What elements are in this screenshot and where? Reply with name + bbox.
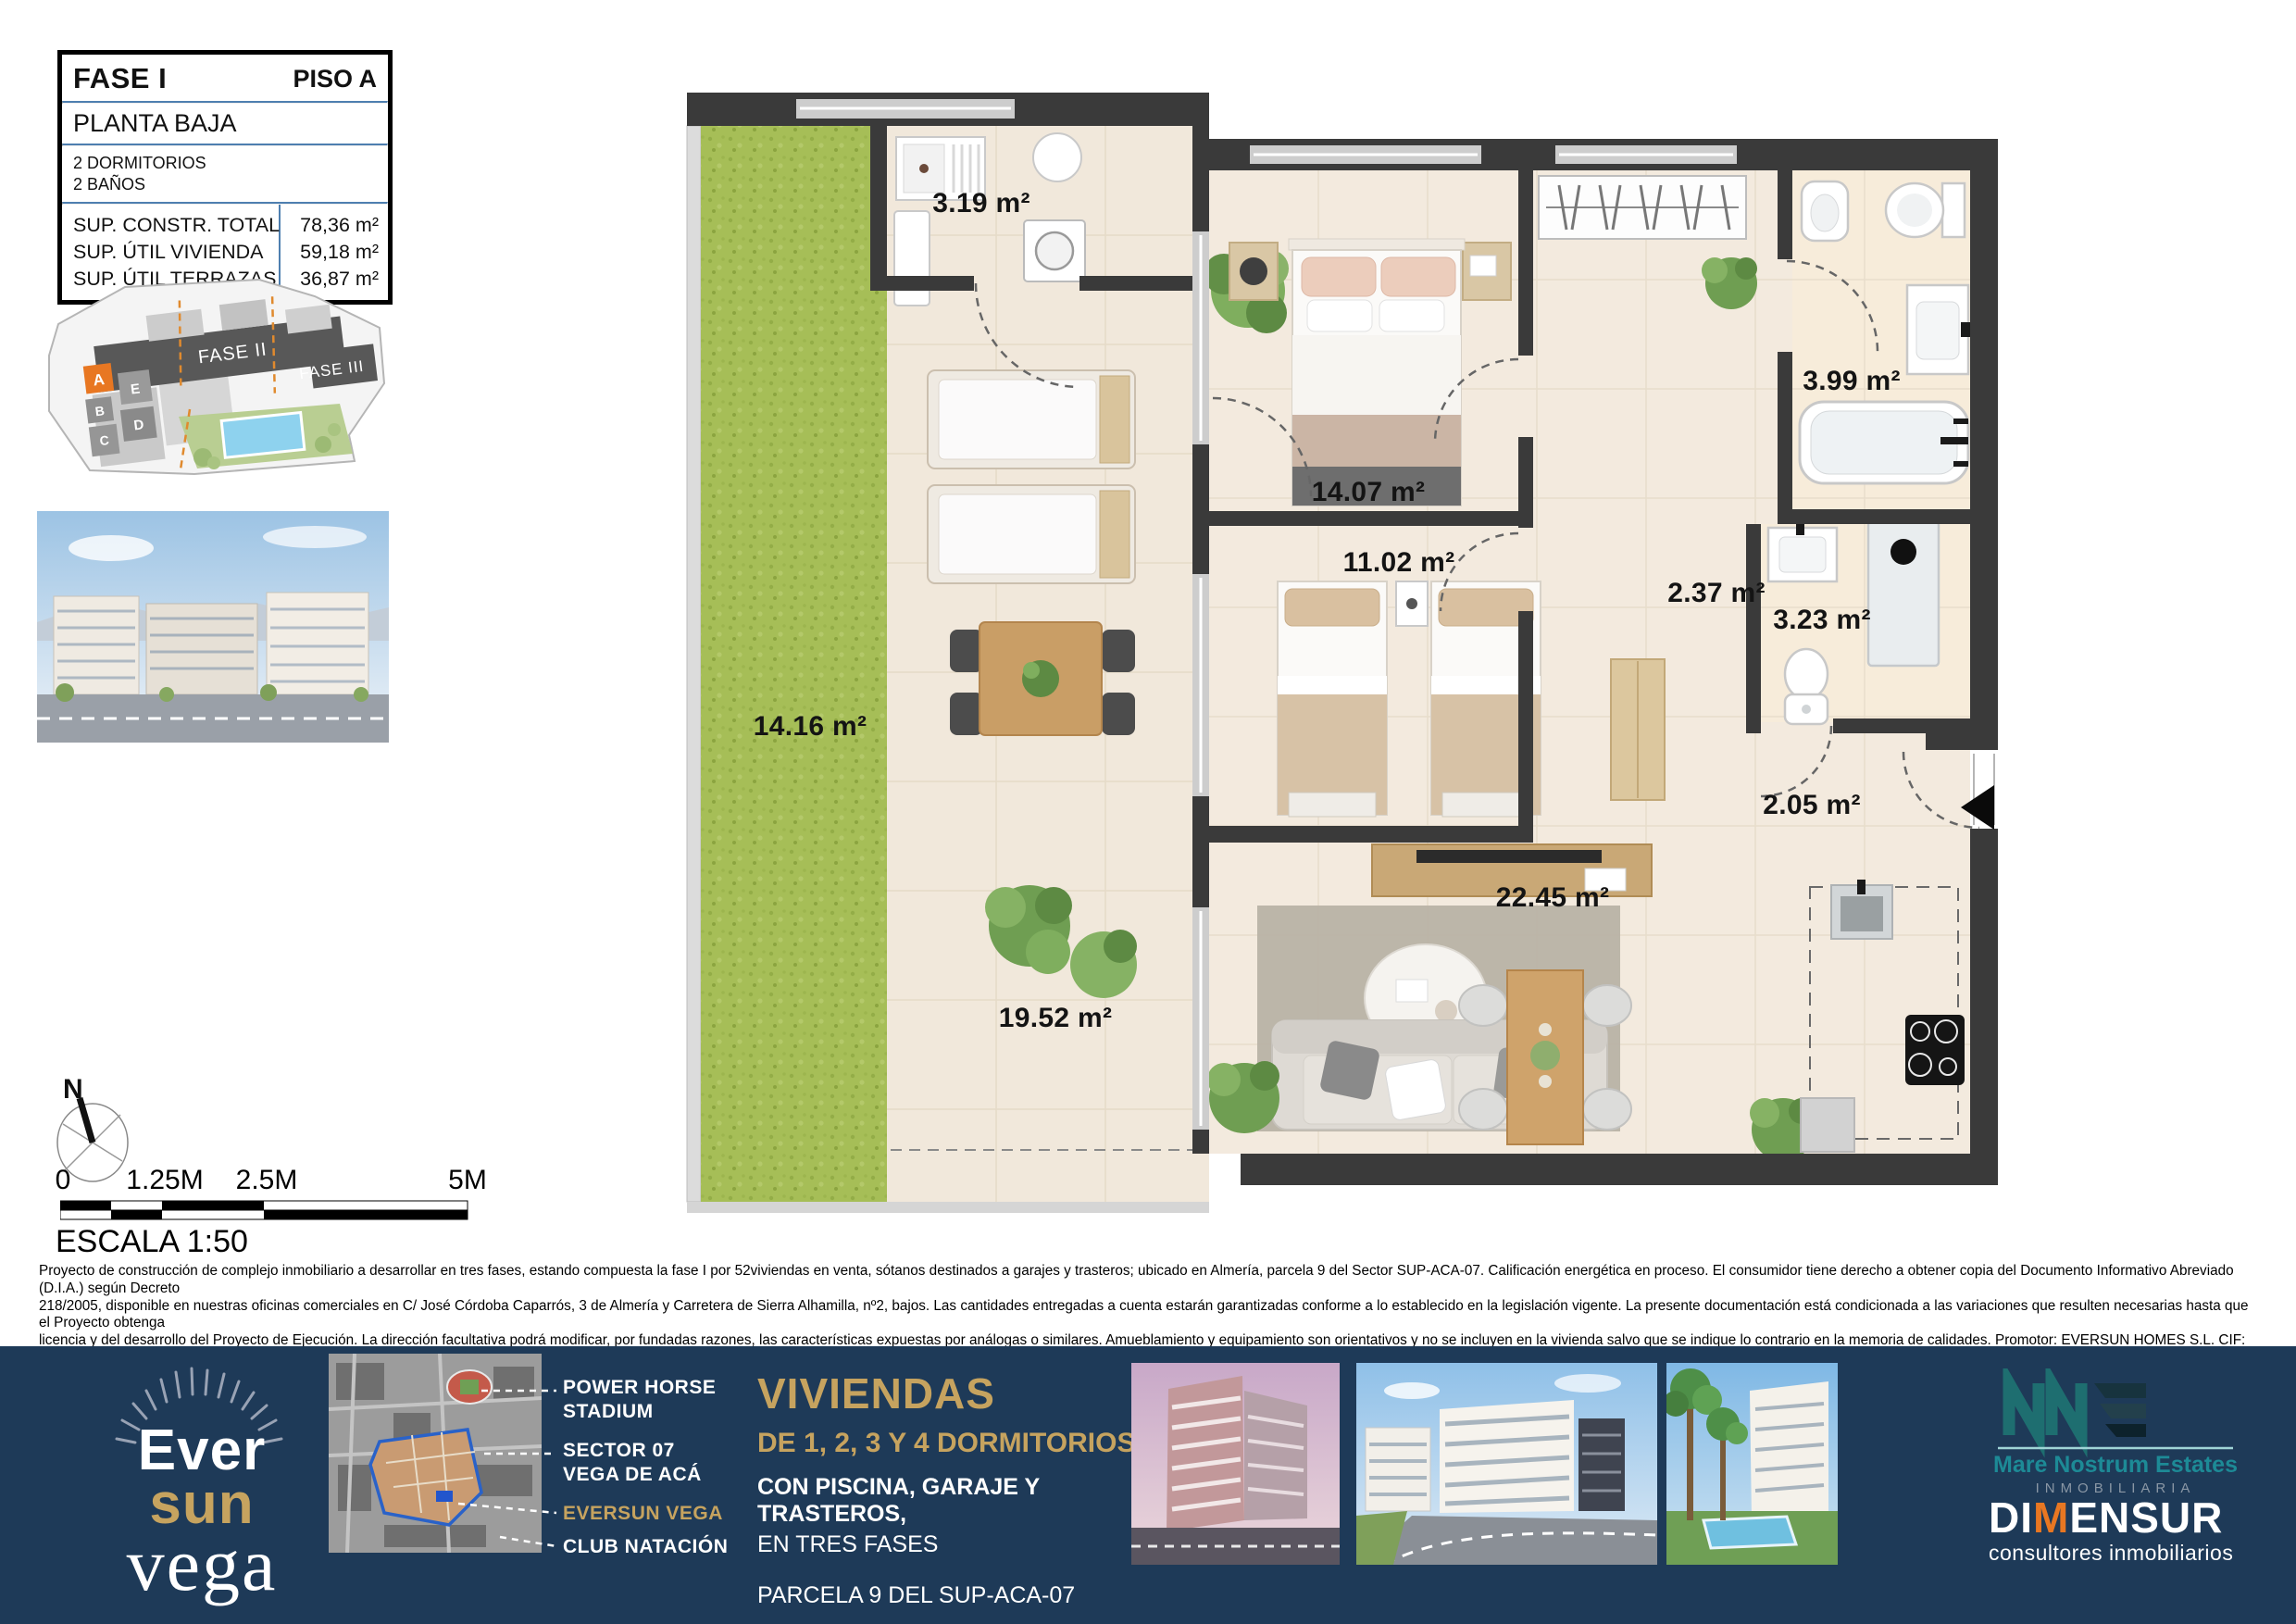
promo-title: VIVIENDAS xyxy=(757,1368,1146,1418)
pool xyxy=(221,413,305,458)
scale-tick-5: 5M xyxy=(448,1165,487,1196)
floorplan-brochure-page: FASE I PISO A PLANTA BAJA 2 DORMITORIOS … xyxy=(0,0,2296,1624)
bathroom-count: 2 BAÑOS xyxy=(73,174,377,195)
dimensur-sub: consultores inmobiliarios xyxy=(1989,1541,2248,1566)
planta-label: PLANTA BAJA xyxy=(62,104,388,144)
bedroom-count: 2 DORMITORIOS xyxy=(73,153,377,174)
floor-label: PISO A xyxy=(293,65,377,94)
scale-tick-25: 2.5M xyxy=(236,1165,298,1196)
block-d-label: D xyxy=(133,417,145,433)
room-label-laundry: 3.19 m² xyxy=(932,188,1030,219)
callout-club-natacion: CLUB NATACIÓN xyxy=(563,1535,728,1559)
block-e-label: E xyxy=(130,381,141,397)
promo-line3: CON PISCINA, GARAJE Y TRASTEROS, xyxy=(757,1474,1146,1528)
room-label-living: 22.45 m² xyxy=(1496,882,1609,914)
dimensur-logo: DIMENSUR consultores inmobiliarios xyxy=(1989,1494,2248,1566)
floor-plan xyxy=(685,93,2055,1218)
legal-line: Proyecto de construcción de complejo inm… xyxy=(39,1263,2259,1298)
terrace-glazing xyxy=(687,126,701,1202)
mare-nostrum-logo: Mare Nostrum Estates INMOBILIARIA xyxy=(1990,1368,2240,1498)
promo-line2: DE 1, 2, 3 Y 4 DORMITORIOS, xyxy=(757,1428,1146,1459)
block-b-label: B xyxy=(94,403,106,418)
room-label-bedroom-main: 14.07 m² xyxy=(1312,477,1425,508)
callout-stadium: POWER HORSE STADIUM xyxy=(563,1376,716,1424)
surface-row-value: 78,36 m² xyxy=(281,212,379,239)
room-label-bathroom-2: 3.23 m² xyxy=(1773,605,1871,636)
surface-row-value: 59,18 m² xyxy=(281,239,379,266)
room-label-hall-1: 2.37 m² xyxy=(1667,578,1766,609)
building-render-photo xyxy=(37,511,389,743)
promo-text: VIVIENDAS DE 1, 2, 3 Y 4 DORMITORIOS, CO… xyxy=(757,1368,1146,1624)
room-label-hall-entry: 2.05 m² xyxy=(1763,790,1861,821)
room-label-garden: 14.16 m² xyxy=(754,711,867,743)
scale-tick-125: 1.25M xyxy=(126,1165,203,1196)
mne-name: Mare Nostrum Estates xyxy=(1993,1452,2238,1478)
callout-eversun-vega: EVERSUN VEGA xyxy=(563,1502,723,1526)
scale-bar xyxy=(60,1200,471,1222)
footer-photo-3 xyxy=(1666,1363,1838,1565)
footer-photo-2 xyxy=(1356,1363,1657,1565)
wardrobe xyxy=(1539,176,1746,239)
room-label-terrace: 19.52 m² xyxy=(999,1003,1112,1034)
dimensur-orange-m: M xyxy=(2033,1493,2069,1542)
block-a-label: A xyxy=(92,370,106,389)
promo-line4: EN TRES FASES xyxy=(757,1531,1146,1558)
scale-tick-0: 0 xyxy=(56,1165,71,1196)
callout-sector: SECTOR 07 VEGA DE ACÁ xyxy=(563,1439,702,1487)
garden-grass xyxy=(701,126,887,1202)
room-label-bedroom-2: 11.02 m² xyxy=(1343,547,1455,579)
promo-line5: PARCELA 9 DEL SUP-ACA-07 xyxy=(757,1582,1146,1609)
phase-label: FASE I xyxy=(73,62,167,95)
eversun-logo-vega: vega xyxy=(100,1528,304,1602)
rooms-summary: 2 DORMITORIOS 2 BAÑOS xyxy=(62,146,388,202)
block-c-label: C xyxy=(99,432,110,448)
legal-line: 218/2005, disponible en nuestras oficina… xyxy=(39,1298,2259,1333)
scale-text: ESCALA 1:50 xyxy=(56,1224,248,1260)
unit-info-box: FASE I PISO A PLANTA BAJA 2 DORMITORIOS … xyxy=(57,50,393,305)
eversun-logo-ever: Ever xyxy=(109,1424,294,1478)
surface-row-label: SUP. ÚTIL VIVIENDA xyxy=(73,239,279,266)
footer-photo-1 xyxy=(1131,1363,1340,1565)
surface-row-label: SUP. CONSTR. TOTAL xyxy=(73,212,279,239)
room-label-bathroom-1: 3.99 m² xyxy=(1803,366,1901,397)
site-plan-diagram: A E B D C FASE II FASE III xyxy=(32,270,403,493)
